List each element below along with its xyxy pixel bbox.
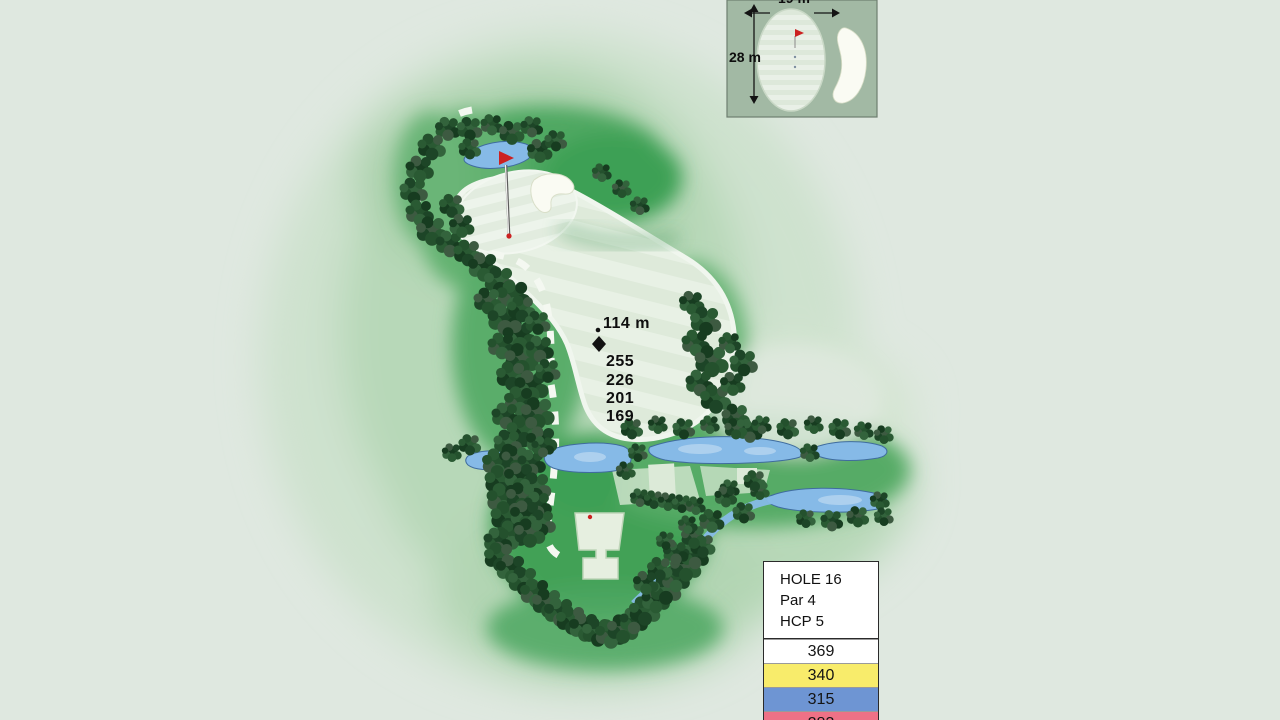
tee-row-red-distance: 283: [808, 715, 835, 720]
hole-hcp-label: HCP 5: [780, 611, 878, 632]
hole-par-label: Par 4: [780, 590, 878, 611]
inset-depth-label: 28 m: [729, 50, 761, 64]
hole-info-box: HOLE 16 Par 4 HCP 5 369 340 315 283: [763, 561, 879, 720]
tee-distance-label-1: 255: [606, 354, 634, 370]
hole-diagram-page: 114 m 255 226 201 169 28 m 19 m HOLE 16 …: [0, 0, 1280, 720]
tee-distance-label-4: 169: [606, 409, 634, 425]
course-map: [0, 0, 1280, 720]
tee-row-blue: 315: [764, 687, 878, 711]
tee-row-blue-distance: 315: [808, 691, 835, 709]
tee-boxes: [575, 513, 624, 579]
tee-row-white: 369: [764, 639, 878, 663]
hole-info-header: HOLE 16 Par 4 HCP 5: [764, 562, 878, 639]
tee-distance-label-2: 226: [606, 373, 634, 389]
tee-row-white-distance: 369: [808, 643, 835, 661]
tee-row-yellow: 340: [764, 663, 878, 687]
hole-number-label: HOLE 16: [780, 569, 878, 590]
pin-distance-label: 114 m: [603, 316, 650, 332]
pond-b2: [813, 442, 887, 461]
tee-marker-dot: [588, 515, 592, 519]
tee-row-red: 283: [764, 711, 878, 720]
tee-distance-label-3: 201: [606, 391, 634, 407]
inset-width-label: 19 m: [778, 0, 810, 5]
tee-row-yellow-distance: 340: [808, 667, 835, 685]
